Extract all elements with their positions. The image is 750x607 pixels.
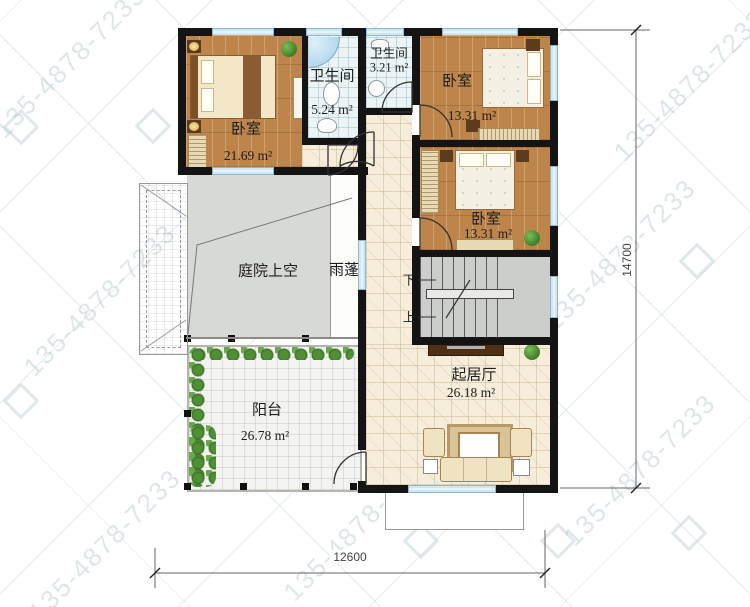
stair-label-up: 上 [403, 307, 416, 326]
door-arc [420, 218, 452, 250]
door-arc [328, 145, 358, 175]
room-label: 卫生间 [309, 65, 354, 86]
dimension-bottom-label: 12600 [330, 550, 369, 564]
door-arc [382, 82, 412, 112]
door-arc [334, 452, 366, 484]
room-label: 雨蓬 [329, 259, 359, 280]
room-label: 庭院上空 [238, 260, 298, 281]
door-arc [340, 161, 374, 167]
room-area: 26.18 m² [447, 385, 495, 401]
plan-linework [0, 0, 750, 607]
room-area: 3.21 m² [370, 61, 408, 76]
room-label: 起居厅 [451, 364, 496, 385]
dimension-right-label: 14700 [620, 240, 634, 279]
stair-break-line [446, 280, 470, 318]
dimension-right-lines [560, 25, 650, 493]
stair-label-down: 下 [403, 270, 416, 289]
awning-diagonal [141, 320, 186, 351]
room-area: 13.31 m² [464, 226, 512, 242]
room-label: 阳台 [252, 399, 282, 420]
room-area: 13.31 m² [448, 108, 496, 124]
room-label: 卧室 [442, 70, 472, 91]
room-label: 卫生间 [370, 43, 408, 62]
awning-diagonal [141, 185, 186, 216]
floor-plan: 卧室 21.69 m² 卫生间 5.24 m² 卫生间 3.21 m² 卧室 1… [0, 0, 750, 607]
room-area: 21.69 m² [224, 148, 272, 164]
room-area: 5.24 m² [311, 102, 353, 118]
room-area: 26.78 m² [241, 428, 289, 444]
floor-plan-canvas: 135-4878-7233 135-4878-7233 135-4878-723… [0, 0, 750, 607]
room-label: 卧室 [231, 118, 261, 139]
